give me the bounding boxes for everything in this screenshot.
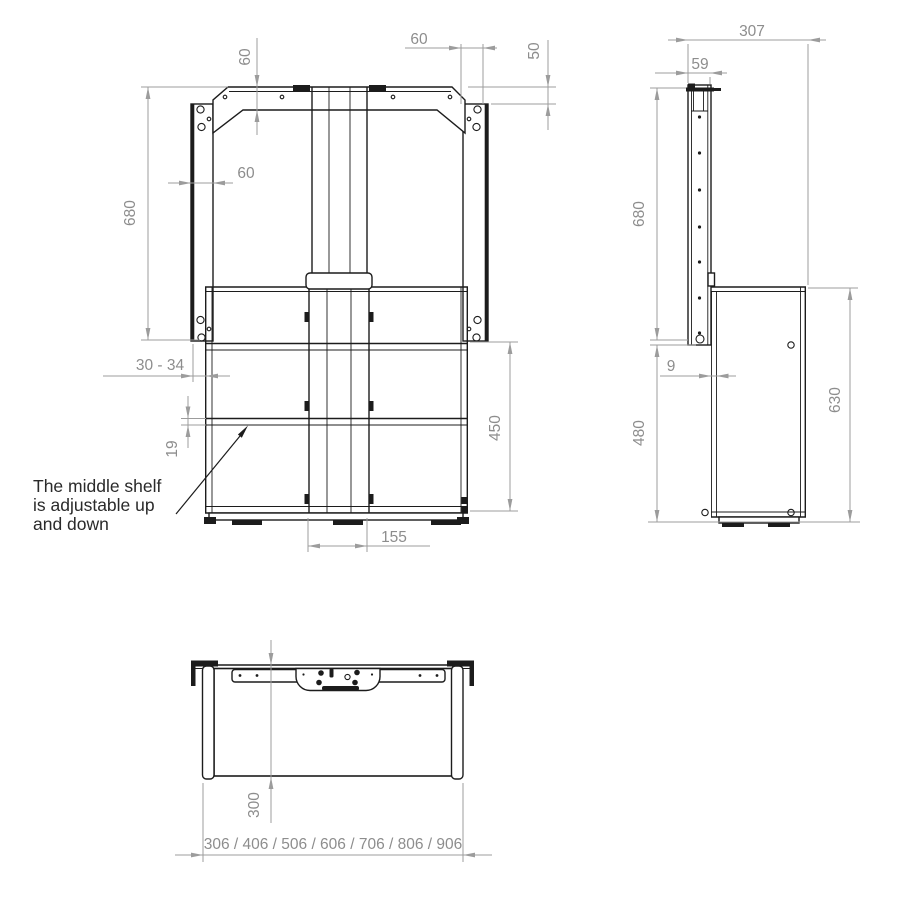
dim-side-panel-gap: 9 (660, 358, 736, 378)
dim-label: 59 (691, 56, 708, 73)
annotation-line: is adjustable up (33, 495, 155, 515)
dim-side-column-depth: 59 (655, 56, 727, 84)
cabinet-side (702, 287, 806, 527)
bottom-view: 300 306 / 406 / 506 / 606 / 706 / 806 / … (175, 640, 492, 862)
side-panel-right (452, 666, 464, 779)
side-panel-left (203, 666, 215, 779)
base-strip (209, 513, 463, 520)
dim-label: 307 (739, 23, 765, 40)
leader-line (176, 436, 240, 514)
dim-label: 306 / 406 / 506 / 606 / 706 / 806 / 906 (204, 836, 463, 853)
dim-label: 9 (667, 358, 676, 375)
dim-front-shelf-thickness: 19 (164, 396, 206, 458)
dim-label: 630 (827, 387, 844, 413)
drawing-svg: 60 60 50 60 (0, 0, 900, 900)
dim-front-column-width: 155 (308, 518, 430, 552)
cabinet-bottom (191, 661, 474, 780)
foot (722, 523, 744, 527)
technical-drawing-page: 60 60 50 60 (0, 0, 900, 900)
dim-label: 30 - 34 (136, 357, 185, 374)
column-clamp-right (369, 85, 386, 92)
annotation-line: The middle shelf (33, 476, 162, 496)
dim-bottom-depth: 300 (246, 640, 273, 823)
dim-label: 155 (381, 529, 407, 546)
dim-label: 480 (631, 420, 648, 446)
annotation-line: and down (33, 514, 109, 534)
dim-bottom-width-options: 306 / 406 / 506 / 606 / 706 / 806 / 906 (175, 783, 492, 862)
dim-front-inner-height: 450 (470, 342, 518, 511)
lift-column-front (305, 87, 374, 513)
cabinet-front (204, 287, 469, 525)
side-view: 307 59 680 9 480 (631, 23, 860, 527)
wall-rail-left (191, 104, 213, 341)
dim-label: 60 (237, 165, 255, 182)
dim-label: 50 (526, 42, 543, 60)
foot (431, 520, 461, 525)
dim-label: 680 (631, 201, 648, 227)
dim-side-lower-height: 480 (631, 345, 696, 522)
column-clamp-left (293, 85, 310, 92)
top-mount-bracket (213, 85, 465, 133)
dim-side-cabinet-height: 630 (648, 288, 860, 522)
wall-column-side (686, 84, 721, 346)
front-view: 60 60 50 60 (33, 31, 556, 552)
dim-label: 680 (122, 200, 139, 226)
foot (333, 520, 363, 525)
dim-label: 19 (164, 440, 181, 457)
dim-label: 60 (237, 48, 254, 66)
column-collar (306, 273, 372, 289)
dim-side-total-height: 680 (631, 88, 688, 340)
dim-label: 60 (410, 31, 428, 48)
foot (768, 523, 790, 527)
foot (232, 520, 262, 525)
dim-label: 450 (487, 415, 504, 441)
dim-label: 300 (246, 792, 263, 818)
